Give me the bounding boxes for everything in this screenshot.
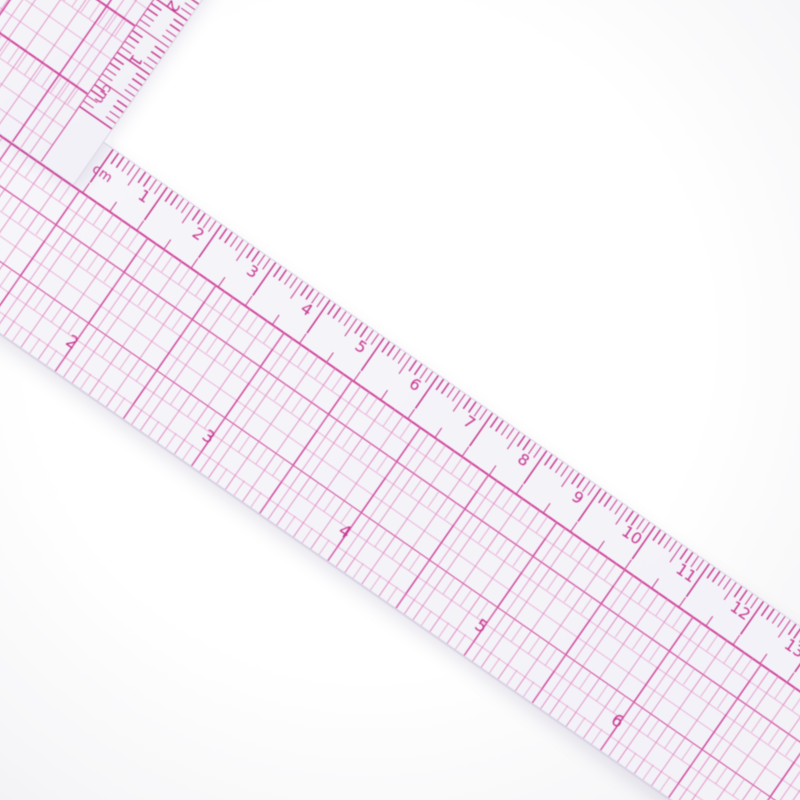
photo-background: cm 1 2 3 4 5 6 7 8 9 10 11 12 13 2 3 4 5…	[0, 0, 800, 800]
ruler-vertical-arm: cm 1 2 3	[0, 0, 509, 185]
ruler-main-arm: cm 1 2 3 4 5 6 7 8 9 10 11 12 13 2 3 4 5…	[0, 0, 800, 800]
